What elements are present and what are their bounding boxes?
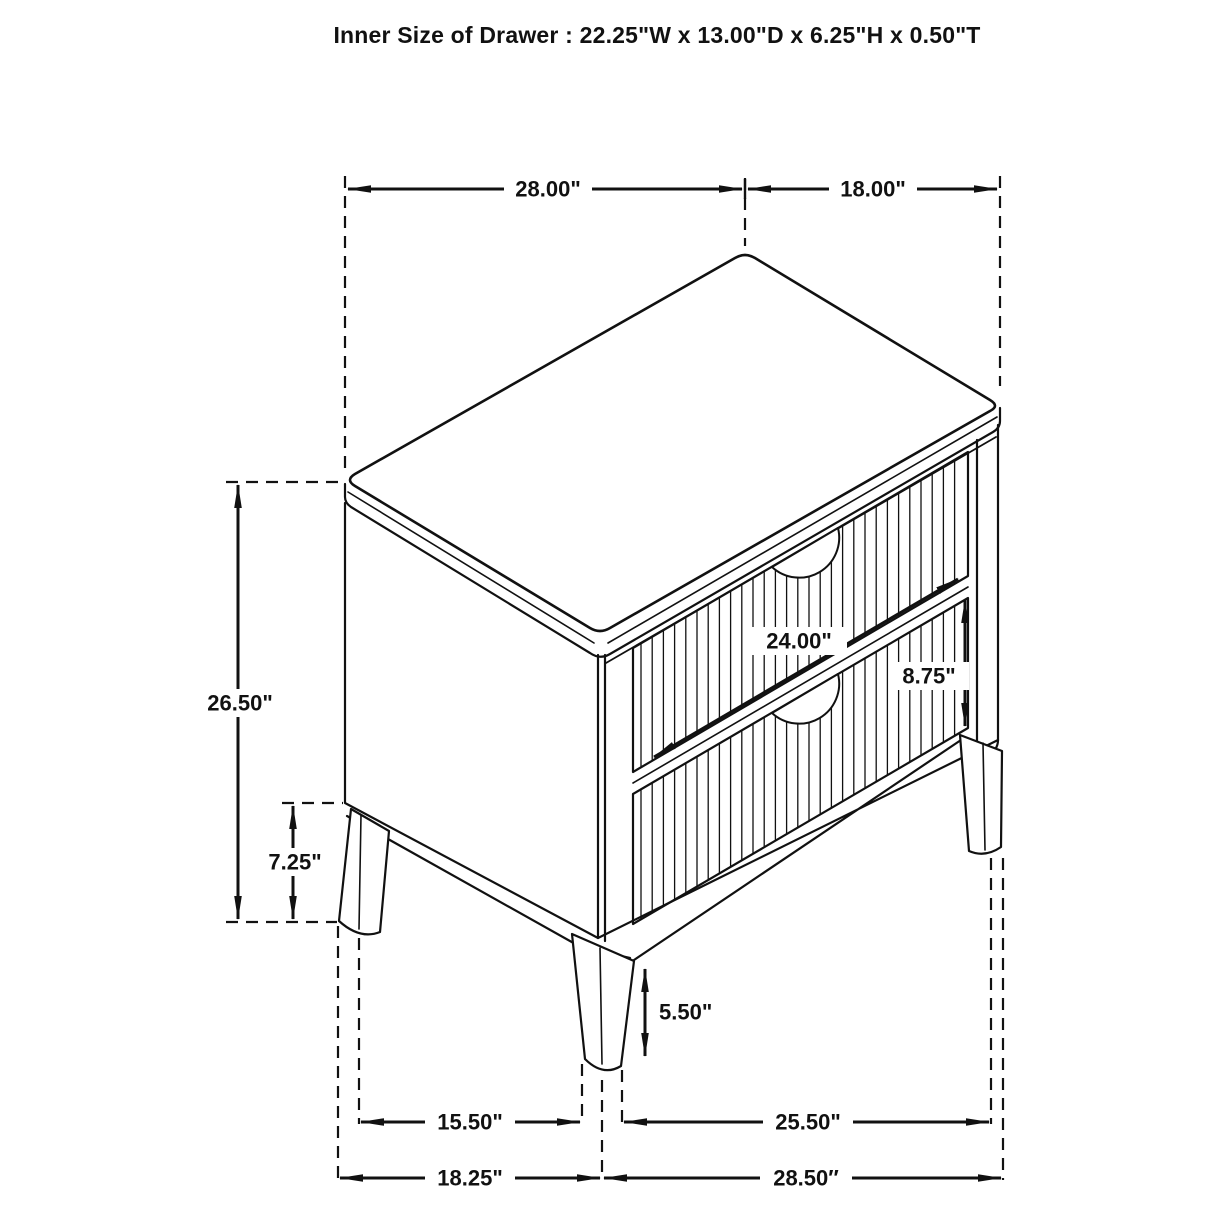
svg-text:5.50": 5.50" [659,1000,712,1025]
dim-label-front-leg-height: 5.50" [655,998,727,1026]
dim-label-drawer-face-height: 8.75" [889,662,969,690]
dim-label-top-width: 28.00" [504,176,592,202]
dim-label-width-leg-spacing: 25.50" [763,1109,853,1135]
svg-text:24.00": 24.00" [766,629,831,654]
top-edge-band [345,408,1000,657]
svg-text:8.75": 8.75" [902,664,955,689]
front-center-leg [572,934,634,1070]
svg-text:25.50": 25.50" [775,1110,840,1135]
dim-label-depth-leg-spacing: 15.50" [425,1109,515,1135]
dim-label-top-depth: 18.00" [829,176,917,202]
svg-text:26.50": 26.50" [207,691,272,716]
dimension-diagram-page: Inner Size of Drawer : 22.25"W x 13.00"D… [0,0,1214,1214]
dim-label-side-leg-clearance: 7.25" [257,848,333,876]
svg-text:28.50″: 28.50″ [773,1166,839,1191]
svg-text:7.25": 7.25" [268,850,321,875]
nightstand-drawing: 28.00" 18.00" 26.50" 7.25" 24.00" 8.75" [0,0,1214,1214]
bottom-rail [347,740,998,960]
dim-label-width-overall: 28.50″ [760,1165,852,1191]
svg-text:18.00": 18.00" [840,177,905,202]
drawer-1-handle [772,528,839,578]
svg-text:18.25": 18.25" [437,1166,502,1191]
right-front-leg [960,735,1002,854]
right-corner-stile [977,425,998,755]
back-left-leg [339,809,389,934]
top-edge-inner-line [348,417,997,643]
dim-label-drawer-face-width: 24.00" [751,627,847,655]
svg-text:28.00": 28.00" [515,177,580,202]
dim-label-overall-height: 26.50" [195,689,285,717]
dim-label-depth-overall: 18.25" [425,1165,515,1191]
svg-text:15.50": 15.50" [437,1110,502,1135]
